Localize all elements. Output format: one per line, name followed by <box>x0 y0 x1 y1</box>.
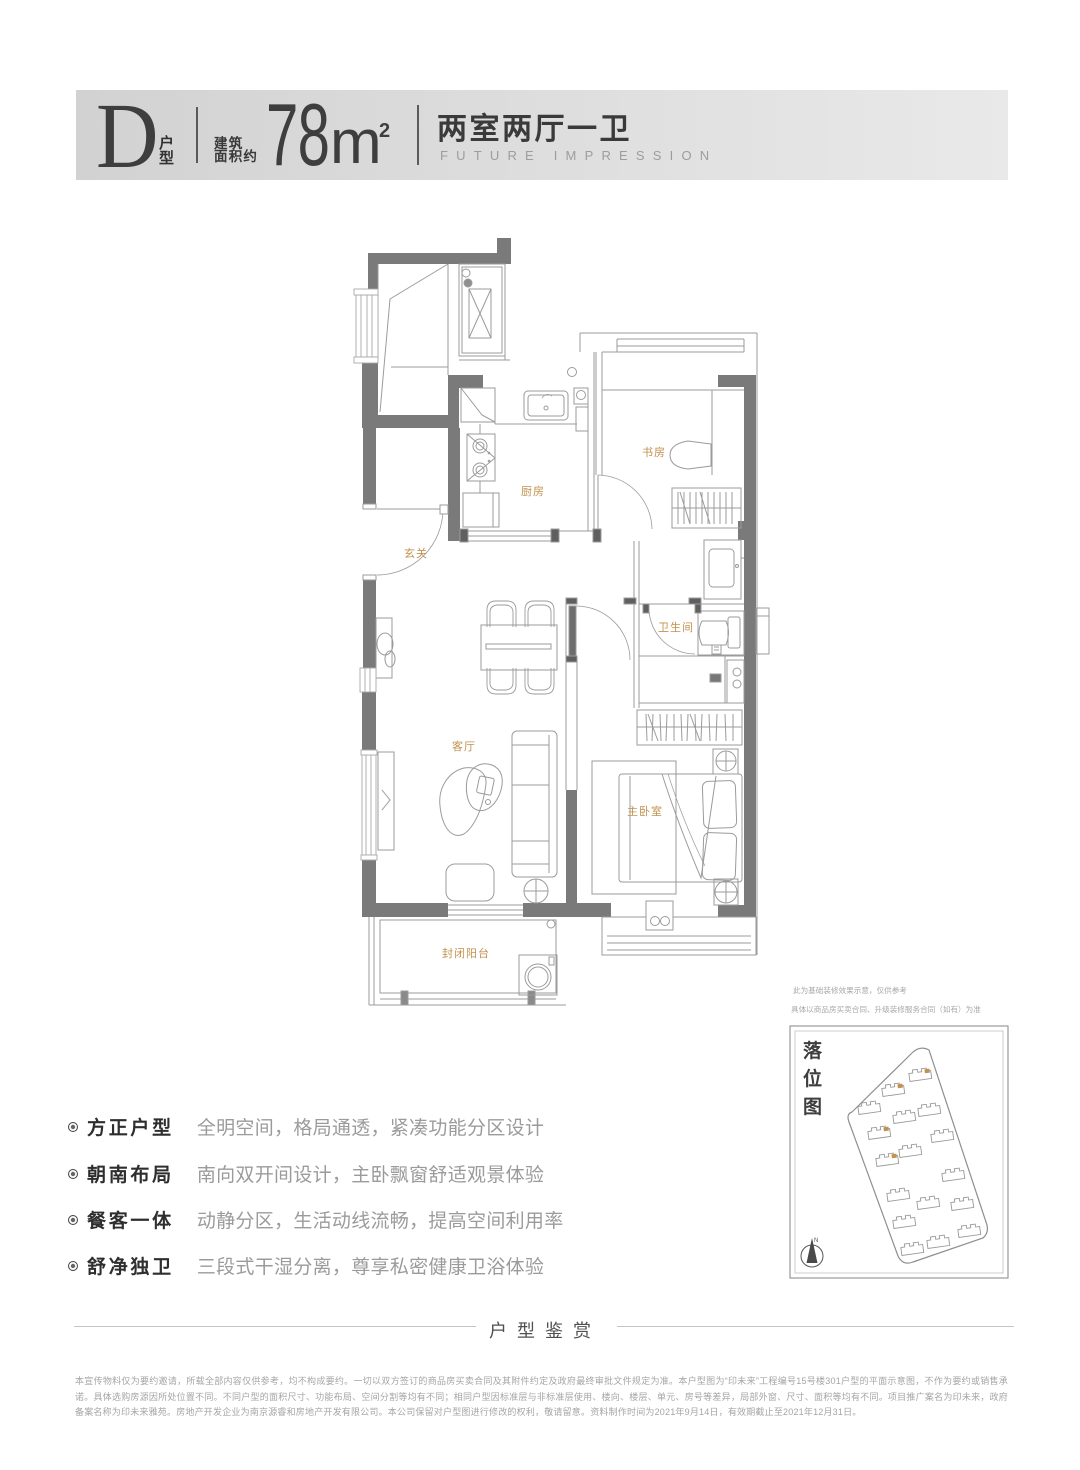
svg-text:玄关: 玄关 <box>404 546 428 560</box>
svg-text:卫生间: 卫生间 <box>658 620 694 634</box>
svg-text:N: N <box>814 1238 818 1244</box>
svg-text:厨房: 厨房 <box>521 485 545 498</box>
svg-text:主卧室: 主卧室 <box>627 804 663 818</box>
svg-text:图: 图 <box>803 1096 822 1118</box>
svg-text:落: 落 <box>803 1039 823 1062</box>
svg-text:封闭阳台: 封闭阳台 <box>442 946 490 960</box>
svg-text:客厅: 客厅 <box>452 739 476 753</box>
svg-text:书房: 书房 <box>642 446 666 459</box>
svg-text:位: 位 <box>803 1067 822 1090</box>
